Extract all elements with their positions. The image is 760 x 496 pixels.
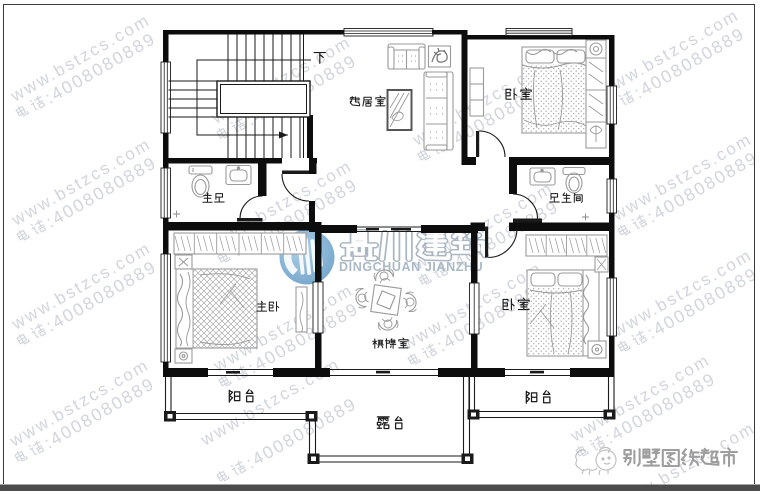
svg-text:DINGCHUAN JIANZHU: DINGCHUAN JIANZHU bbox=[339, 260, 483, 274]
